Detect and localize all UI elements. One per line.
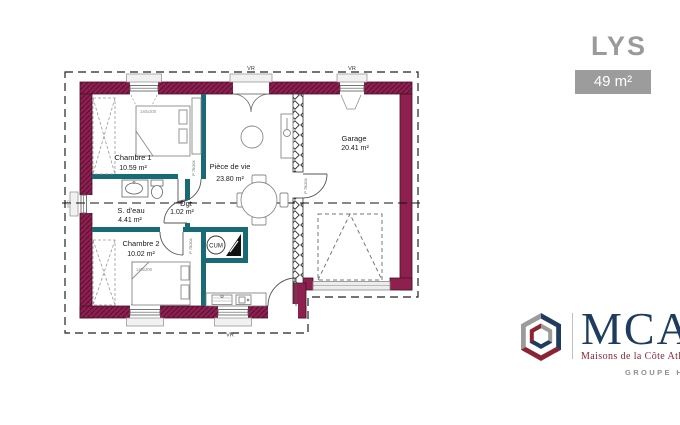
room-area: 10.02 m² — [127, 251, 155, 258]
window-sill — [70, 192, 78, 216]
french-door — [233, 94, 269, 112]
wardrobe-strip — [192, 98, 201, 154]
window-sill — [127, 318, 164, 326]
mca-logo-icon — [517, 310, 565, 364]
logo-divider — [572, 313, 573, 359]
shutter-label: VR — [226, 333, 234, 339]
door-chambre2 — [160, 232, 183, 255]
water-heater-label: CUM — [209, 244, 223, 250]
chair-symbol — [280, 193, 288, 207]
mca-logo: MCA Maisons de la Côte Atlantique GROUPE… — [517, 310, 680, 377]
wardrobe-chambre1 — [93, 98, 115, 174]
garage-partition-wall — [293, 94, 303, 283]
shutter-label: VR — [348, 66, 356, 72]
room-label: Dgt — [180, 199, 193, 208]
window-sill — [230, 74, 272, 82]
window-sill — [127, 74, 162, 82]
door-size-label: P 75/204 — [192, 160, 196, 175]
room-area: 1.02 m² — [170, 209, 194, 216]
door-size-label: P 75/204 — [304, 178, 308, 193]
window-sill — [337, 74, 367, 82]
bed1-size-label: 140x200 — [140, 109, 157, 114]
logo-text: MCA Maisons de la Côte Atlantique GROUPE… — [581, 310, 680, 377]
dining-table-symbol — [241, 182, 277, 218]
room-label: S. d'eau — [117, 206, 144, 215]
room-label: Pièce de vie — [210, 162, 251, 171]
bed2-size-label: 140x200 — [136, 267, 153, 272]
door-entry — [268, 278, 296, 306]
wardrobe-chambre2 — [93, 240, 115, 305]
door-size-label: P 75/204 — [189, 238, 193, 253]
plan-title: LYS — [591, 31, 647, 62]
window-size-label: F60 — [66, 200, 71, 208]
room-area: 23.80 m² — [216, 176, 244, 183]
room-area: 4.41 m² — [118, 217, 142, 224]
garage-door — [313, 214, 390, 290]
room-area: 10.59 m² — [119, 165, 147, 172]
room-label: Garage — [341, 134, 366, 143]
bed-chambre1 — [136, 98, 201, 156]
tech-closet — [226, 234, 241, 256]
logo-brand: MCA — [581, 310, 680, 348]
shutter-label: VR — [247, 66, 255, 72]
room-area: 20.41 m² — [341, 145, 369, 152]
logo-tagline: Maisons de la Côte Atlantique — [581, 351, 680, 362]
room-label: Chambre 2 — [122, 239, 159, 248]
room-label: Chambre 1 — [114, 153, 151, 162]
area-badge: 49 m² — [575, 70, 651, 94]
logo-group-name: GROUPE HEXA — [625, 368, 680, 377]
window-sill — [215, 318, 252, 326]
bathroom-fixtures — [122, 180, 163, 199]
page: 140x200 140x200 — [0, 0, 680, 425]
coffee-table-symbol — [241, 126, 263, 148]
kitchen-counter — [206, 293, 266, 306]
